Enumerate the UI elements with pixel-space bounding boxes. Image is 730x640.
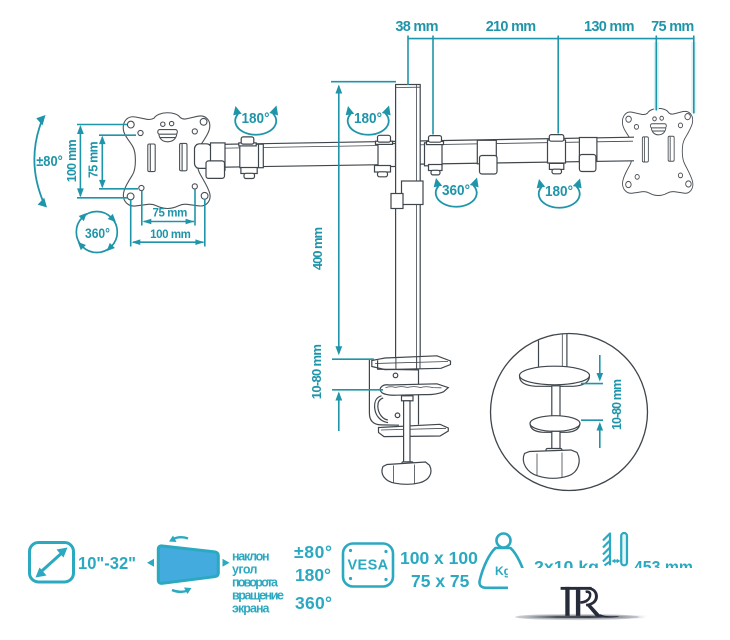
svg-text:360°: 360° [85, 226, 110, 241]
svg-text:130 mm: 130 mm [584, 19, 634, 35]
svg-text:180°: 180° [545, 183, 573, 200]
svg-text:75 mm: 75 mm [152, 207, 187, 219]
svg-text:угол: угол [232, 563, 258, 577]
svg-text:±80°: ±80° [294, 542, 332, 562]
svg-text:наклон: наклон [232, 550, 270, 564]
svg-text:75 mm: 75 mm [86, 141, 100, 177]
svg-text:10-80 mm: 10-80 mm [309, 345, 324, 400]
svg-text:вращение: вращение [232, 589, 284, 603]
svg-text:210 mm: 210 mm [486, 19, 536, 35]
svg-text:поворота: поворота [232, 576, 279, 590]
svg-text:400 mm: 400 mm [310, 227, 325, 270]
svg-text:100 mm: 100 mm [150, 229, 191, 241]
svg-text:100 x 100: 100 x 100 [400, 548, 478, 568]
svg-text:360°: 360° [295, 593, 332, 613]
svg-text:360°: 360° [442, 182, 470, 199]
svg-text:±80°: ±80° [36, 154, 63, 170]
svg-text:75 mm: 75 mm [651, 19, 693, 35]
svg-text:75 x 75: 75 x 75 [411, 571, 470, 591]
svg-text:180°: 180° [242, 110, 270, 127]
svg-text:180°: 180° [354, 110, 382, 127]
svg-text:экрана: экрана [232, 602, 271, 616]
svg-text:10-80 mm: 10-80 mm [610, 379, 624, 430]
svg-text:10"-32": 10"-32" [78, 553, 136, 573]
svg-text:VESA: VESA [347, 558, 388, 574]
svg-text:100 mm: 100 mm [65, 140, 79, 183]
svg-text:38 mm: 38 mm [395, 19, 437, 35]
svg-text:180°: 180° [295, 565, 331, 585]
